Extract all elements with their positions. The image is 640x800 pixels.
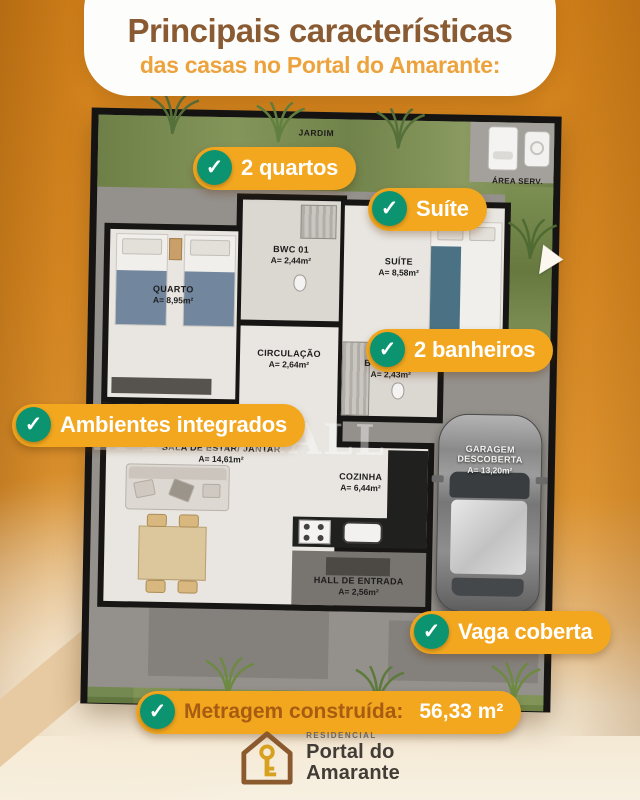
house-key-logo-icon xyxy=(240,730,294,786)
label-cozinha: COZINHA A= 6,44m² xyxy=(293,470,427,494)
badge-label: Vaga coberta xyxy=(458,619,593,645)
label-garagem: GARAGEM DESCOBERTA A= 13,20m² xyxy=(434,443,547,476)
dining-table xyxy=(138,526,207,581)
sofa-cushion xyxy=(133,479,156,498)
sofa-back xyxy=(129,466,227,480)
dresser xyxy=(111,377,211,395)
badge-2-banheiros: ✓ 2 banheiros xyxy=(366,329,553,372)
car-rear-window xyxy=(451,578,523,597)
plant-tuft-icon xyxy=(368,108,429,149)
room-circulacao xyxy=(239,325,339,415)
washer-detail xyxy=(493,151,513,159)
check-icon: ✓ xyxy=(414,614,449,649)
washing-machine-icon xyxy=(488,126,519,171)
car-mirror xyxy=(432,475,444,482)
single-bed xyxy=(183,234,237,327)
chair xyxy=(147,514,167,527)
label-circulacao: CIRCULAÇÃO A= 2,64m² xyxy=(240,347,338,370)
sofa xyxy=(125,463,230,511)
nightstand xyxy=(169,238,182,260)
car-mirror xyxy=(536,477,548,484)
label-hall: HALL DE ENTRADA A= 2,56m² xyxy=(291,574,425,598)
badge-label: Ambientes integrados xyxy=(60,412,287,438)
metragem-value: 56,33 m² xyxy=(419,700,503,724)
metragem-label: Metragem construída: xyxy=(184,700,403,724)
pillow xyxy=(122,238,162,255)
page-title: Principais características xyxy=(84,12,556,50)
badge-ambientes-integrados: ✓ Ambientes integrados xyxy=(12,404,305,447)
badge-label: 2 quartos xyxy=(241,155,338,181)
logo-text: RESIDENCIAL Portal do Amarante xyxy=(306,732,400,784)
badge-metragem: ✓ Metragem construída: 56,33 m² xyxy=(136,691,521,734)
plant-tuft-icon xyxy=(248,102,309,143)
burner xyxy=(318,524,324,530)
badge-vaga-coberta: ✓ Vaga coberta xyxy=(410,611,611,654)
sofa-cushion xyxy=(202,484,220,498)
plant-tuft-icon xyxy=(142,94,203,135)
check-icon: ✓ xyxy=(370,332,405,367)
stove xyxy=(298,520,330,545)
burner xyxy=(303,535,309,541)
badge-suite: ✓ Suíte xyxy=(368,188,487,231)
tank-detail xyxy=(530,141,544,155)
logo-tagline: RESIDENCIAL xyxy=(306,732,400,740)
page-subtitle: das casas no Portal do Amarante: xyxy=(84,52,556,79)
developer-logo: RESIDENCIAL Portal do Amarante xyxy=(0,730,640,786)
kitchen-sink xyxy=(342,521,382,544)
pillow xyxy=(190,239,230,256)
laundry-tank-icon xyxy=(524,131,551,167)
badge-2-quartos: ✓ 2 quartos xyxy=(193,147,356,190)
entry-mat xyxy=(326,557,390,576)
white-leaf-decoration xyxy=(539,245,565,278)
shower xyxy=(300,205,337,240)
check-icon: ✓ xyxy=(16,407,51,442)
badge-label: Suíte xyxy=(416,196,469,222)
logo-name-line1: Portal do xyxy=(306,742,400,763)
logo-name-line2: Amarante xyxy=(306,763,400,784)
check-icon: ✓ xyxy=(197,150,232,185)
header-card: Principais características das casas no … xyxy=(84,0,556,96)
sofa-throw xyxy=(168,478,195,503)
burner xyxy=(304,524,310,530)
car-roof xyxy=(450,500,527,575)
flyer-page: Principais características das casas no … xyxy=(0,0,640,800)
label-quarto: QUARTO A= 8,95m² xyxy=(109,283,237,306)
check-icon: ✓ xyxy=(140,694,175,729)
label-suite: SUÍTE A= 8,58m² xyxy=(344,255,454,278)
chair xyxy=(145,580,165,593)
burner xyxy=(317,535,323,541)
label-bwc01: BWC 01 A= 2,44m² xyxy=(242,243,340,266)
service-area-label: ÁREA SERV. xyxy=(477,176,557,187)
single-bed xyxy=(115,233,169,326)
chair xyxy=(177,580,197,593)
chair xyxy=(179,514,199,527)
check-icon: ✓ xyxy=(372,191,407,226)
badge-label: 2 banheiros xyxy=(414,337,535,363)
